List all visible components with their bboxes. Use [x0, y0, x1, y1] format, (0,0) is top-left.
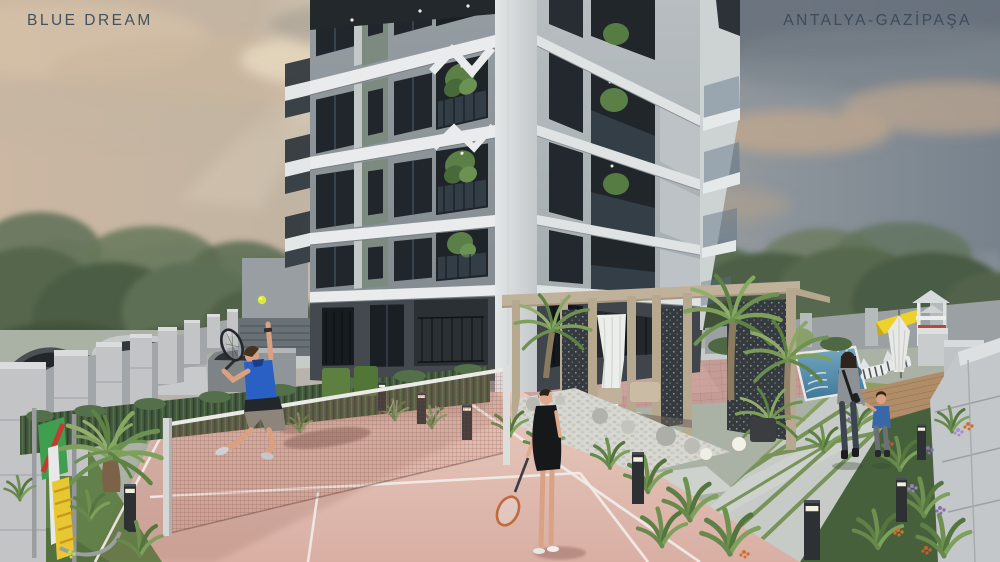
blue-shirt — [244, 360, 277, 404]
planter-pot — [750, 418, 776, 442]
net-post-right — [503, 365, 510, 465]
scene-illustration — [0, 0, 1000, 562]
balcony-ends-left — [285, 58, 310, 268]
sphere-lamp — [700, 448, 712, 460]
project-title: BLUE DREAM — [27, 12, 153, 30]
shoe — [547, 546, 559, 552]
tennis-ball — [258, 296, 266, 304]
shoe — [533, 548, 545, 554]
sphere-lamp — [732, 437, 746, 451]
building-left-face — [310, 0, 495, 392]
render-canvas: BLUE DREAM ANTALYA-GAZİPAŞA — [0, 0, 1000, 562]
location-title: ANTALYA-GAZİPAŞA — [783, 12, 972, 30]
